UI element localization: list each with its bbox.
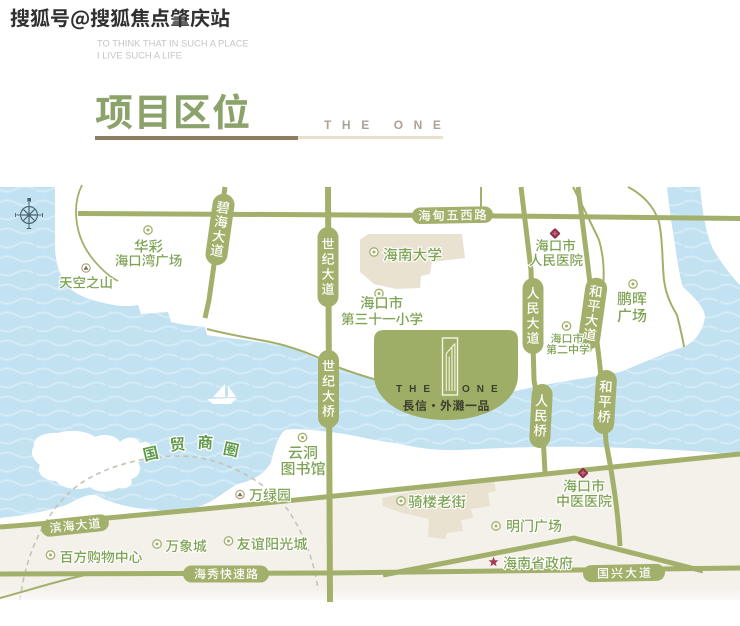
- svg-text:I LIVE SUCH A LIFE: I LIVE SUCH A LIFE: [97, 50, 182, 61]
- svg-text:TO THINK THAT IN SUCH A PLACE: TO THINK THAT IN SUCH A PLACE: [97, 38, 249, 49]
- svg-text:THE: THE: [396, 384, 437, 395]
- svg-text:ONE: ONE: [462, 384, 505, 395]
- svg-text:THE ONE: THE ONE: [324, 118, 452, 132]
